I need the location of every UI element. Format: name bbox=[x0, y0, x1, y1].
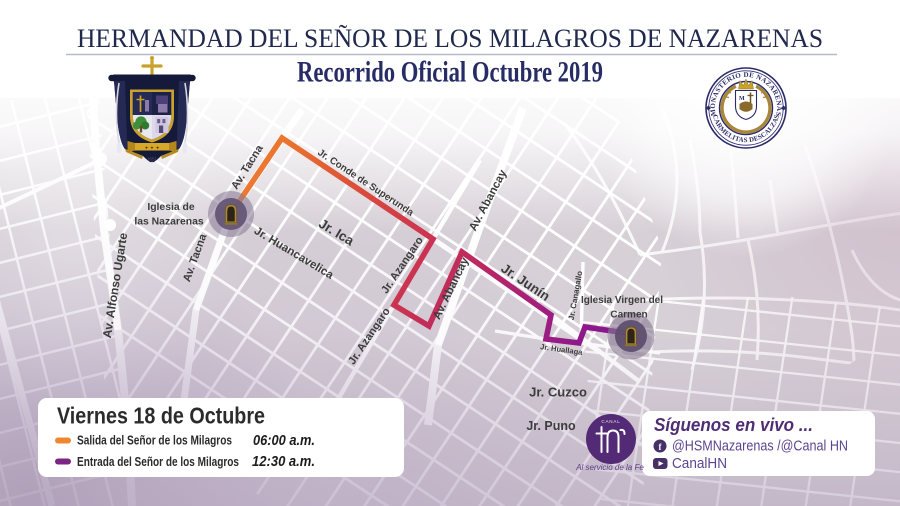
svg-text:las Nazarenas: las Nazarenas bbox=[134, 217, 204, 228]
svg-text:Viernes 18 de Octubre: Viernes 18 de Octubre bbox=[57, 403, 265, 429]
svg-text:Carmen: Carmen bbox=[610, 310, 647, 321]
svg-text:M: M bbox=[739, 96, 745, 102]
svg-text:Iglesia Virgen del: Iglesia Virgen del bbox=[581, 295, 663, 306]
svg-text:Jr. Cuzco: Jr. Cuzco bbox=[529, 385, 587, 400]
svg-text:Entrada del Señor de los Milag: Entrada del Señor de los Milagros bbox=[77, 454, 239, 469]
svg-text:✦ ✦ ✦: ✦ ✦ ✦ bbox=[144, 146, 159, 152]
svg-text:1651: 1651 bbox=[147, 157, 158, 162]
svg-text:@HSMNazarenas /@Canal HN: @HSMNazarenas /@Canal HN bbox=[672, 438, 848, 455]
svg-text:HERMANDAD DEL SEÑOR DE LOS MIL: HERMANDAD DEL SEÑOR DE LOS MILAGROS DE N… bbox=[77, 24, 823, 53]
svg-text:06:00 a.m.: 06:00 a.m. bbox=[253, 433, 315, 449]
svg-text:12:30 a.m.: 12:30 a.m. bbox=[252, 454, 315, 470]
svg-text:Iglesia de: Iglesia de bbox=[147, 202, 195, 213]
svg-text:CanalHN: CanalHN bbox=[672, 455, 727, 472]
svg-text:Al servicio de la Fe: Al servicio de la Fe bbox=[575, 463, 644, 472]
svg-text:Jr. Puno: Jr. Puno bbox=[526, 419, 576, 433]
svg-text:Síguenos en vivo ...: Síguenos en vivo ... bbox=[654, 415, 813, 435]
svg-text:CANAL: CANAL bbox=[601, 419, 620, 424]
svg-text:Recorrido Oficial Octubre 2019: Recorrido Oficial Octubre 2019 bbox=[297, 56, 603, 89]
svg-text:Salida del Señor de los Milagr: Salida del Señor de los Milagros bbox=[77, 433, 232, 448]
